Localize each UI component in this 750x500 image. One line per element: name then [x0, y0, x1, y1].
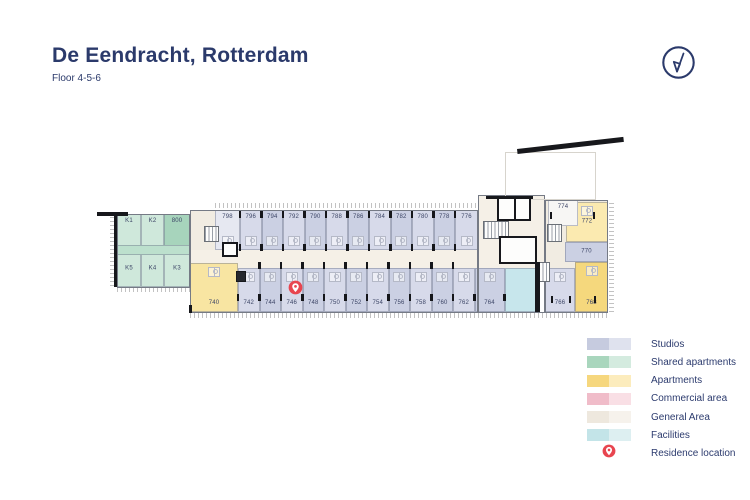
door-marker — [303, 244, 306, 251]
door-marker — [323, 294, 326, 301]
door-marker — [239, 211, 242, 218]
door-marker — [452, 262, 455, 269]
door-marker — [346, 211, 349, 218]
staircase — [204, 226, 219, 242]
door-marker — [430, 294, 433, 301]
shared-apartments-swatch-dark — [587, 356, 609, 368]
general-area-swatch-dark — [587, 411, 609, 423]
balustrade-ticks — [609, 200, 614, 312]
door-marker — [454, 211, 457, 218]
balustrade-ticks — [215, 203, 478, 208]
building-outline — [117, 214, 190, 288]
door-marker — [432, 211, 435, 218]
door-marker — [282, 244, 285, 251]
legend-label: Studios — [651, 339, 684, 350]
door-marker — [454, 244, 457, 251]
legend-item-facilities: Facilities — [587, 429, 736, 441]
door-marker — [303, 211, 306, 218]
legend-item-apartments: Apartments — [587, 375, 736, 387]
legend-item-general-area: General Area — [587, 411, 736, 423]
balustrade-ticks — [110, 216, 114, 286]
door-marker — [344, 294, 347, 301]
residence-pin-icon — [288, 280, 303, 295]
facilities-swatch-light — [609, 429, 631, 441]
legend-label: Shared apartments — [651, 357, 736, 368]
door-marker — [432, 244, 435, 251]
door-marker — [323, 262, 326, 269]
floorplan-page: De Eendracht, Rotterdam Floor 4-5-6 7987… — [0, 0, 750, 500]
elevator-shaft — [222, 242, 238, 257]
door-marker — [260, 244, 263, 251]
door-marker — [258, 262, 261, 269]
door-marker — [411, 244, 414, 251]
commercial-area-swatch-dark — [587, 393, 609, 405]
elevator-shaft — [499, 236, 537, 264]
door-marker — [430, 262, 433, 269]
elevator-shaft — [497, 197, 531, 221]
legend: Studios Shared apartments Apartments Com… — [587, 338, 736, 466]
door-marker — [239, 244, 242, 251]
elevator-shaft — [236, 271, 246, 282]
door-marker — [258, 294, 261, 301]
legend-label: Facilities — [651, 430, 690, 441]
residence-pin-icon — [602, 444, 616, 463]
studios-swatch-light — [609, 338, 631, 350]
legend-item-residence-location: Residence location — [587, 448, 736, 460]
door-marker — [389, 211, 392, 218]
apartments-swatch-dark — [587, 375, 609, 387]
wall-segment — [535, 262, 540, 312]
door-marker — [368, 211, 371, 218]
door-marker — [366, 294, 369, 301]
wall-segment — [486, 196, 533, 199]
legend-item-shared-apartments: Shared apartments — [587, 356, 736, 368]
door-marker — [411, 211, 414, 218]
legend-label: Residence location — [651, 448, 736, 459]
door-marker — [344, 262, 347, 269]
legend-label: Apartments — [651, 375, 702, 386]
door-marker — [387, 262, 390, 269]
wall-segment — [517, 137, 624, 154]
door-marker — [346, 244, 349, 251]
door-marker — [387, 294, 390, 301]
door-marker — [368, 244, 371, 251]
door-marker — [473, 294, 476, 301]
legend-label: General Area — [651, 412, 710, 423]
apartments-swatch-light — [609, 375, 631, 387]
door-marker — [569, 296, 572, 303]
door-marker — [550, 212, 553, 219]
balustrade-ticks — [190, 313, 608, 318]
wall-segment — [114, 214, 117, 287]
door-marker — [325, 211, 328, 218]
door-marker — [389, 244, 392, 251]
staircase — [547, 224, 562, 242]
door-marker — [282, 211, 285, 218]
door-marker — [280, 294, 283, 301]
studios-swatch-dark — [587, 338, 609, 350]
door-marker — [280, 262, 283, 269]
facilities-swatch-dark — [587, 429, 609, 441]
door-marker — [409, 294, 412, 301]
building-outline — [190, 210, 478, 313]
legend-label: Commercial area — [651, 393, 727, 404]
legend-item-commercial-area: Commercial area — [587, 393, 736, 405]
legend-item-studios: Studios — [587, 338, 736, 350]
door-marker — [366, 262, 369, 269]
door-marker — [593, 212, 596, 219]
door-marker — [503, 294, 506, 301]
door-marker — [594, 296, 597, 303]
door-marker — [409, 262, 412, 269]
door-marker — [260, 211, 263, 218]
door-marker — [452, 294, 455, 301]
shared-apartments-swatch-light — [609, 356, 631, 368]
building-outline — [545, 200, 608, 313]
balustrade-ticks — [117, 288, 190, 292]
commercial-area-swatch-light — [609, 393, 631, 405]
general-area-swatch-light — [609, 411, 631, 423]
door-marker — [237, 294, 240, 301]
door-marker — [301, 262, 304, 269]
wall-segment — [189, 305, 192, 313]
door-marker — [551, 296, 554, 303]
roof-outline — [505, 152, 596, 200]
door-marker — [325, 244, 328, 251]
